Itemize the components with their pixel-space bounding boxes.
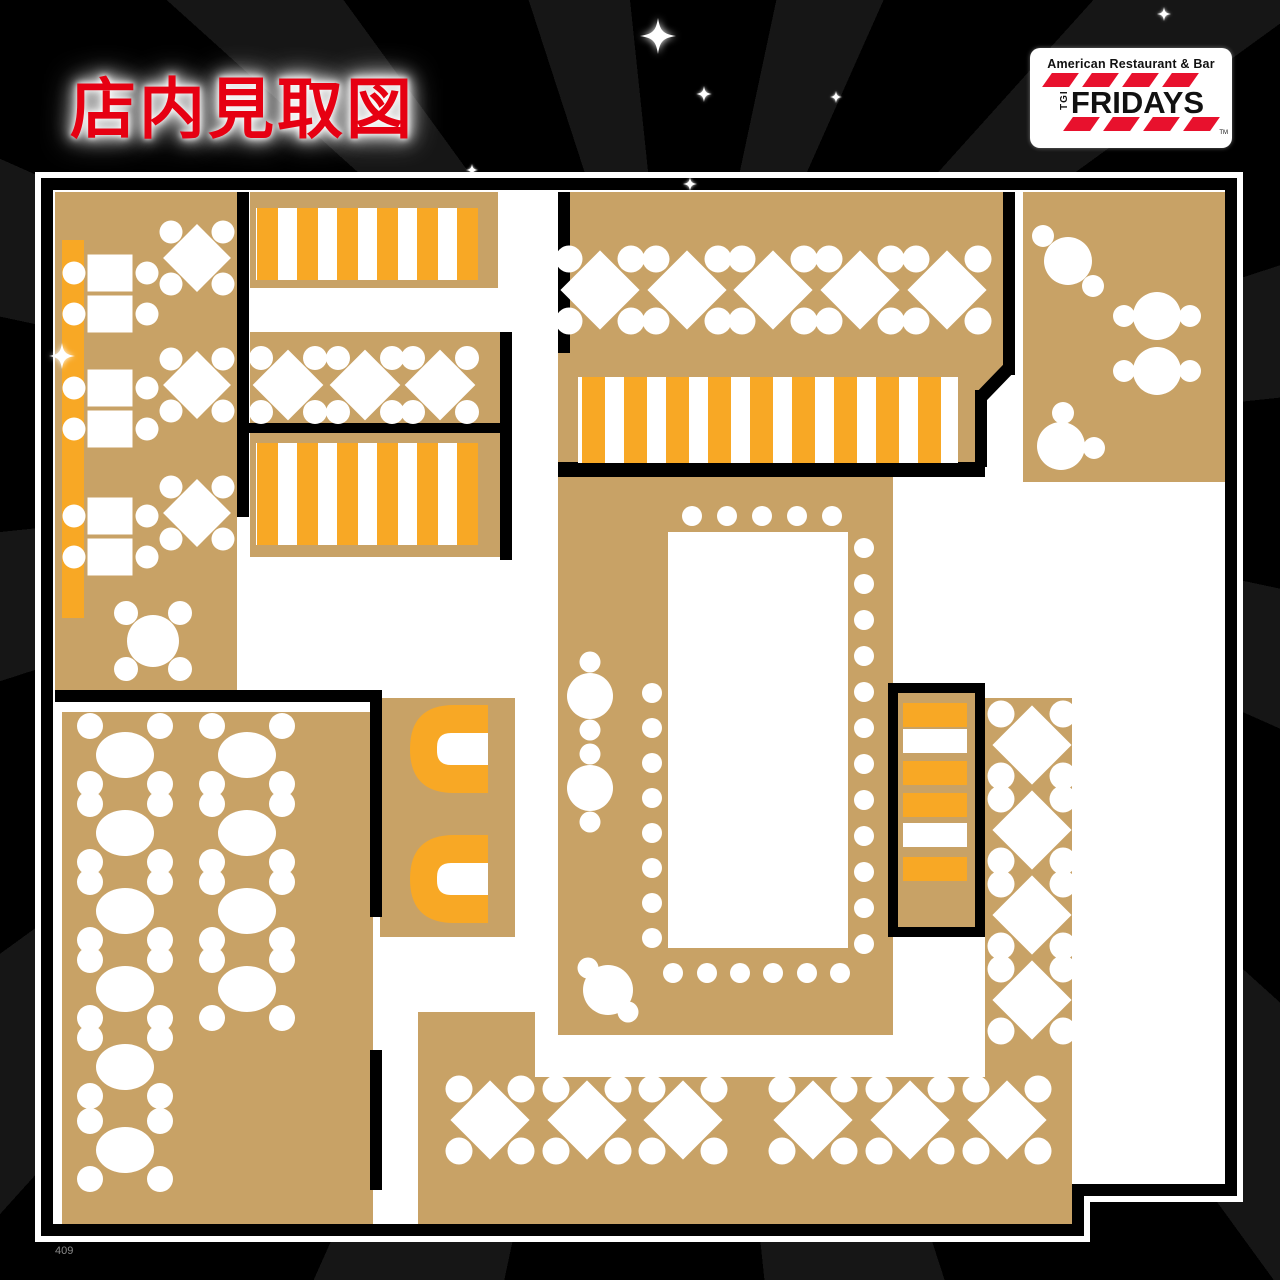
chair (1025, 1138, 1052, 1165)
chair (705, 246, 732, 273)
booth-seat-stripe (624, 377, 647, 463)
chair (831, 1076, 858, 1103)
sparkle-icon (830, 91, 842, 103)
booth-seat-stripe (876, 377, 899, 463)
chair (508, 1138, 535, 1165)
chair (543, 1138, 570, 1165)
chair (199, 869, 225, 895)
counter-stool (787, 506, 807, 526)
booth-seat-stripe (792, 377, 815, 463)
counter-stool (854, 934, 874, 954)
chair (988, 933, 1015, 960)
booth-strip-seat (903, 823, 967, 847)
chair (928, 1138, 955, 1165)
chair (380, 346, 404, 370)
booth-seat-stripe (417, 443, 438, 545)
table-oval (96, 1127, 154, 1173)
chair (168, 601, 192, 625)
table-rect (88, 498, 133, 535)
counter-stool (752, 506, 772, 526)
table-oval (96, 732, 154, 778)
counter-stool (642, 788, 662, 808)
ring-counter-inner (668, 532, 848, 948)
chair (77, 1083, 103, 1109)
chair (446, 1076, 473, 1103)
chair (791, 246, 818, 273)
chair (160, 348, 183, 371)
counter-stool (830, 963, 850, 983)
counter-stool (663, 963, 683, 983)
chair (1050, 871, 1077, 898)
u-booth-table (437, 863, 488, 895)
chair (1050, 848, 1077, 875)
counter-stool (854, 718, 874, 738)
chair (160, 476, 183, 499)
chair (63, 303, 86, 326)
chair (580, 652, 601, 673)
table-rect (88, 539, 133, 576)
chair (963, 1076, 990, 1103)
chair (556, 308, 583, 335)
chair (269, 791, 295, 817)
table-oval (96, 810, 154, 856)
chair (401, 400, 425, 424)
chair (168, 657, 192, 681)
chair (791, 308, 818, 335)
booth-seat-stripe (708, 377, 731, 463)
counter-stool (854, 826, 874, 846)
chair (136, 418, 159, 441)
chair (136, 262, 159, 285)
chair (643, 246, 670, 273)
counter-stool (642, 928, 662, 948)
counter-stool (854, 538, 874, 558)
chair (1025, 1076, 1052, 1103)
chair (114, 601, 138, 625)
table-oval (96, 966, 154, 1012)
chair (199, 791, 225, 817)
table-round (583, 965, 633, 1015)
counter-stool (854, 574, 874, 594)
chair (147, 1083, 173, 1109)
chair (455, 400, 479, 424)
chair (199, 713, 225, 739)
booth-strip-seat (903, 793, 967, 817)
chair (705, 308, 732, 335)
chair (988, 956, 1015, 983)
booth-seat-stripe (834, 377, 857, 463)
booth-row-base (256, 208, 478, 280)
chair (816, 246, 843, 273)
booth-seat-stripe (257, 443, 278, 545)
interior-wall (500, 332, 512, 560)
booth-strip-seat (903, 729, 967, 753)
chair (729, 246, 756, 273)
counter-stool (822, 506, 842, 526)
chair (1050, 763, 1077, 790)
chair (63, 262, 86, 285)
chair (212, 400, 235, 423)
chair (303, 346, 327, 370)
chair (401, 346, 425, 370)
interior-wall (237, 192, 249, 517)
table-rect (88, 411, 133, 448)
chair (63, 418, 86, 441)
chair (963, 1138, 990, 1165)
chair (136, 303, 159, 326)
u-booth-table (437, 733, 488, 765)
chair (77, 869, 103, 895)
booth-seat-stripe (377, 443, 398, 545)
chair (965, 308, 992, 335)
chair (866, 1138, 893, 1165)
chair (1113, 360, 1135, 382)
chair (455, 346, 479, 370)
booth-seat-stripe (337, 208, 358, 280)
chair (928, 1076, 955, 1103)
interior-wall (55, 690, 382, 702)
chair (701, 1138, 728, 1165)
chair (269, 869, 295, 895)
interior-wall (370, 702, 382, 917)
table-round (567, 765, 613, 811)
chair (988, 701, 1015, 728)
counter-stool (797, 963, 817, 983)
chair (543, 1076, 570, 1103)
counter-stool (854, 682, 874, 702)
sparkle-icon (1157, 7, 1171, 21)
chair (249, 400, 273, 424)
booth-strip-seat (903, 761, 967, 785)
table-oval (218, 810, 276, 856)
chair (1082, 275, 1104, 297)
counter-stool (854, 646, 874, 666)
chair (147, 791, 173, 817)
interior-wall (370, 1050, 382, 1190)
interior-wall (558, 462, 985, 477)
chair (147, 869, 173, 895)
chair (160, 273, 183, 296)
chair (816, 308, 843, 335)
chair (199, 947, 225, 973)
chair (831, 1138, 858, 1165)
chair (212, 476, 235, 499)
chair (303, 400, 327, 424)
chair (326, 346, 350, 370)
chair (639, 1138, 666, 1165)
chair (269, 947, 295, 973)
sparkle-icon (696, 86, 712, 102)
floor-plan (0, 0, 1280, 1280)
chair (878, 308, 905, 335)
chair (147, 947, 173, 973)
booth-seat-stripe (297, 208, 318, 280)
booth-seat-stripe (750, 377, 773, 463)
counter-stool (717, 506, 737, 526)
chair (77, 1166, 103, 1192)
chair (136, 505, 159, 528)
chair (965, 246, 992, 273)
booth-row-base (256, 443, 478, 545)
sparkle-icon (640, 18, 676, 54)
chair (1179, 360, 1201, 382)
booth-strip-seat (903, 857, 967, 881)
booth-seat-stripe (337, 443, 358, 545)
counter-stool (642, 858, 662, 878)
counter-stool (642, 718, 662, 738)
chair (269, 1005, 295, 1031)
counter-stool (854, 610, 874, 630)
chair (618, 246, 645, 273)
chair (147, 1108, 173, 1134)
chair (556, 246, 583, 273)
table-oval (218, 732, 276, 778)
chair (988, 786, 1015, 813)
table-rect (88, 255, 133, 292)
table-round (1044, 237, 1092, 285)
chair (77, 1108, 103, 1134)
chair (1050, 1018, 1077, 1045)
chair (77, 791, 103, 817)
counter-stool (854, 862, 874, 882)
chair (1050, 933, 1077, 960)
chair (903, 308, 930, 335)
counter-stool (854, 790, 874, 810)
interior-wall (1003, 192, 1015, 375)
table-rect (88, 370, 133, 407)
interior-wall (237, 423, 512, 433)
counter-stool (642, 683, 662, 703)
chair (769, 1138, 796, 1165)
chair (212, 528, 235, 551)
counter-stool (682, 506, 702, 526)
chair (77, 713, 103, 739)
counter-stool (642, 753, 662, 773)
chair (1113, 305, 1135, 327)
table-round (1037, 422, 1085, 470)
table-round (127, 615, 179, 667)
table-round (1133, 347, 1181, 395)
table-round (1133, 292, 1181, 340)
booth-seat-stripe (257, 208, 278, 280)
counter-stool (763, 963, 783, 983)
chair (878, 246, 905, 273)
chair (643, 308, 670, 335)
chair (639, 1076, 666, 1103)
chair (77, 1025, 103, 1051)
chair (212, 273, 235, 296)
booth-seat-stripe (457, 443, 478, 545)
chair (212, 221, 235, 244)
chair (147, 1166, 173, 1192)
chair (147, 713, 173, 739)
chair (988, 763, 1015, 790)
chair (1050, 786, 1077, 813)
booth-seat-stripe (918, 377, 941, 463)
chair (580, 720, 601, 741)
chair (77, 947, 103, 973)
chair (1050, 701, 1077, 728)
chair (114, 657, 138, 681)
table-oval (218, 888, 276, 934)
booth-seat-stripe (377, 208, 398, 280)
chair (729, 308, 756, 335)
chair (1032, 225, 1054, 247)
counter-stool (854, 898, 874, 918)
counter-stool (642, 893, 662, 913)
booth-seat-stripe (666, 377, 689, 463)
chair (988, 1018, 1015, 1045)
chair (199, 1005, 225, 1031)
booth-seat-stripe (297, 443, 318, 545)
table-oval (96, 1044, 154, 1090)
chair (1083, 437, 1105, 459)
chair (988, 871, 1015, 898)
counter-stool (854, 754, 874, 774)
chair (866, 1076, 893, 1103)
chair (212, 348, 235, 371)
poster: { "title": { "text": "店内見取図" }, "logo": … (0, 0, 1280, 1280)
chair (1052, 402, 1074, 424)
chair (249, 346, 273, 370)
interior-wall (975, 390, 987, 467)
chair (269, 713, 295, 739)
chair (160, 221, 183, 244)
chair (63, 377, 86, 400)
booth-seat-stripe (582, 377, 605, 463)
chair (1179, 305, 1201, 327)
chair (326, 400, 350, 424)
chair (701, 1076, 728, 1103)
chair (380, 400, 404, 424)
booth-strip-seat (903, 703, 967, 727)
chair (147, 1025, 173, 1051)
counter-stool (697, 963, 717, 983)
chair (446, 1138, 473, 1165)
chair (160, 528, 183, 551)
booth-seat-stripe (457, 208, 478, 280)
chair (63, 505, 86, 528)
chair (508, 1076, 535, 1103)
chair (1050, 956, 1077, 983)
chair (580, 744, 601, 765)
booth-seat-stripe (417, 208, 438, 280)
chair (605, 1138, 632, 1165)
chair (618, 308, 645, 335)
chair (605, 1076, 632, 1103)
chair (136, 377, 159, 400)
table-oval (96, 888, 154, 934)
table-rect (88, 296, 133, 333)
chair (160, 400, 183, 423)
chair (769, 1076, 796, 1103)
chair (580, 812, 601, 833)
chair (903, 246, 930, 273)
table-round (567, 673, 613, 719)
counter-stool (730, 963, 750, 983)
table-oval (218, 966, 276, 1012)
chair (136, 546, 159, 569)
counter-stool (642, 823, 662, 843)
page-number: 409 (55, 1245, 73, 1257)
chair (988, 848, 1015, 875)
chair (63, 546, 86, 569)
